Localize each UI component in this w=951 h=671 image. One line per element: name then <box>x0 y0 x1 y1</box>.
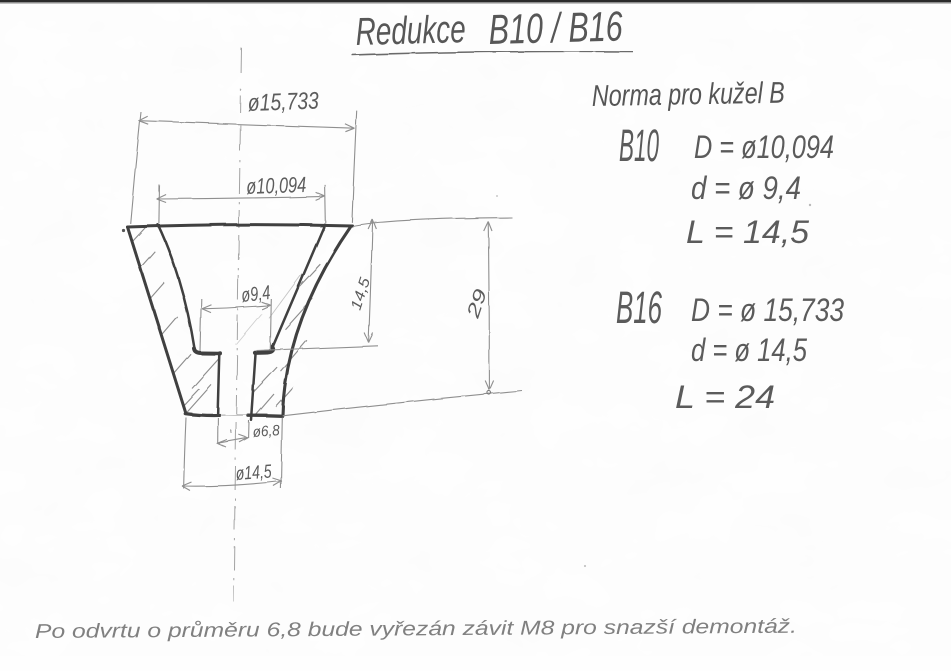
svg-text:d = ø 9,4: d = ø 9,4 <box>691 170 801 206</box>
svg-text:Norma pro kužel B: Norma pro kužel B <box>592 77 786 113</box>
svg-text:B10: B10 <box>619 120 659 171</box>
svg-text:L = 14,5: L = 14,5 <box>686 214 809 250</box>
svg-text:ø6,8: ø6,8 <box>252 422 281 441</box>
svg-text:ø14,5: ø14,5 <box>235 462 273 485</box>
svg-text:D = ø 15,733: D = ø 15,733 <box>691 292 844 328</box>
svg-text:L = 24: L = 24 <box>675 379 775 415</box>
svg-text:d = ø 14,5: d = ø 14,5 <box>691 332 807 368</box>
svg-text:ø15,733: ø15,733 <box>247 88 319 117</box>
svg-text:ø9,4: ø9,4 <box>240 282 271 307</box>
svg-text:ø10,094: ø10,094 <box>246 172 307 199</box>
svg-text:Redukce: Redukce <box>355 8 466 54</box>
svg-text:B10 / B16: B10 / B16 <box>488 2 624 53</box>
svg-text:B16: B16 <box>616 282 663 333</box>
svg-text:D = ø10,094: D = ø10,094 <box>694 129 834 165</box>
